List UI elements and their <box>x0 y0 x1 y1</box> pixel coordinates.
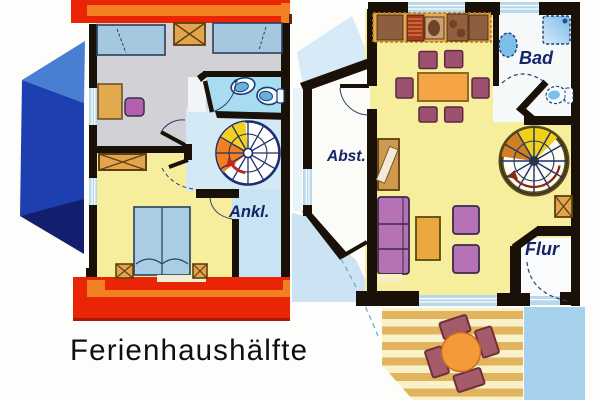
svg-text:Bad: Bad <box>519 48 554 68</box>
svg-text:Ferienhaushälfte: Ferienhaushälfte <box>70 334 308 367</box>
svg-text:Ankl.: Ankl. <box>228 203 269 221</box>
svg-text:Flur: Flur <box>525 239 560 259</box>
svg-text:Abst.: Abst. <box>326 148 366 165</box>
